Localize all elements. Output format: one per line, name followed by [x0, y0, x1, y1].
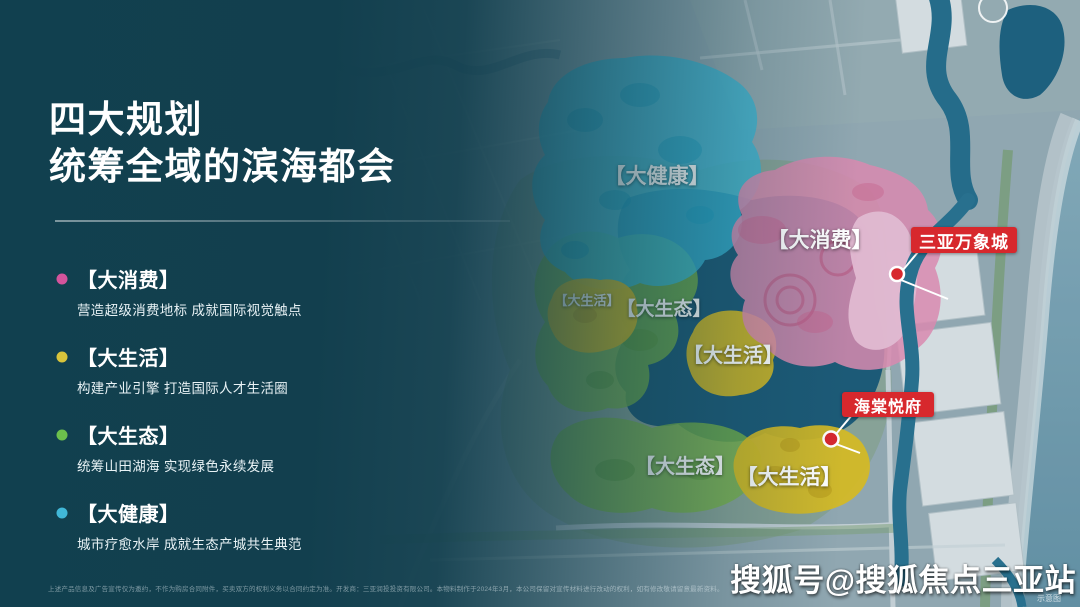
promo-slide: 【大健康】 【大消费】 【大生活】 【大生态】 【大生活】 【大生态】 【大生活…: [0, 0, 1080, 607]
legend-item-ecology: 【大生态】 统筹山田湖海 实现绿色永续发展: [56, 420, 302, 475]
haitang-location-dot: [824, 432, 839, 447]
zone-label-ecology-upper: 【大生态】: [616, 297, 711, 320]
legend-desc: 统筹山田湖海 实现绿色永续发展: [77, 455, 302, 475]
zone-label-life-bottom: 【大生活】: [737, 465, 842, 489]
zone-label-ecology-lower: 【大生态】: [635, 454, 735, 478]
legend: 【大消费】 营造超级消费地标 成就国际视觉触点 【大生活】 构建产业引擎 打造国…: [56, 264, 302, 576]
sohu-watermark: 搜狐号@搜狐焦点三亚站: [730, 555, 1076, 600]
legend-name: 【大消费】: [77, 264, 180, 293]
bullet-icon-health: [56, 507, 68, 519]
legend-name: 【大健康】: [77, 498, 180, 527]
legend-name: 【大生态】: [77, 420, 180, 449]
zone-label-consumption: 【大消费】: [768, 228, 873, 252]
schematic-note: 示意图: [1037, 593, 1061, 604]
title-line-1: 四大规划: [49, 96, 396, 143]
legend-item-life: 【大生活】 构建产业引擎 打造国际人才生活圈: [56, 342, 302, 397]
zone-label-life-small: 【大生活】: [554, 293, 619, 308]
legend-desc: 城市疗愈水岸 成就生态产城共生典范: [77, 533, 302, 553]
legend-desc: 营造超级消费地标 成就国际视觉触点: [77, 299, 302, 319]
title-line-2: 统筹全域的滨海都会: [49, 143, 396, 190]
zone-label-health: 【大健康】: [605, 164, 710, 188]
poi-label-haitangyuefu: 海棠悦府: [842, 392, 934, 417]
zone-label-life-mid: 【大生活】: [683, 344, 783, 367]
bullet-icon-ecology: [56, 429, 68, 441]
page-title: 四大规划 统筹全域的滨海都会: [49, 96, 396, 190]
disclaimer-text: 上述产品信息及广告宣传仅为邀约，不作为购房合同附件，买卖双方的权利义务以合同约定…: [48, 583, 724, 593]
legend-desc: 构建产业引擎 打造国际人才生活圈: [77, 377, 302, 397]
legend-name: 【大生活】: [77, 342, 180, 371]
title-divider: [55, 220, 510, 222]
poi-label-wanxiangcheng: 三亚万象城: [911, 227, 1017, 253]
legend-item-health: 【大健康】 城市疗愈水岸 成就生态产城共生典范: [56, 498, 302, 553]
bullet-icon-consumption: [56, 273, 68, 285]
legend-item-consumption: 【大消费】 营造超级消费地标 成就国际视觉触点: [56, 264, 302, 319]
wanxiang-location-dot: [890, 267, 904, 281]
bullet-icon-life: [56, 351, 68, 363]
